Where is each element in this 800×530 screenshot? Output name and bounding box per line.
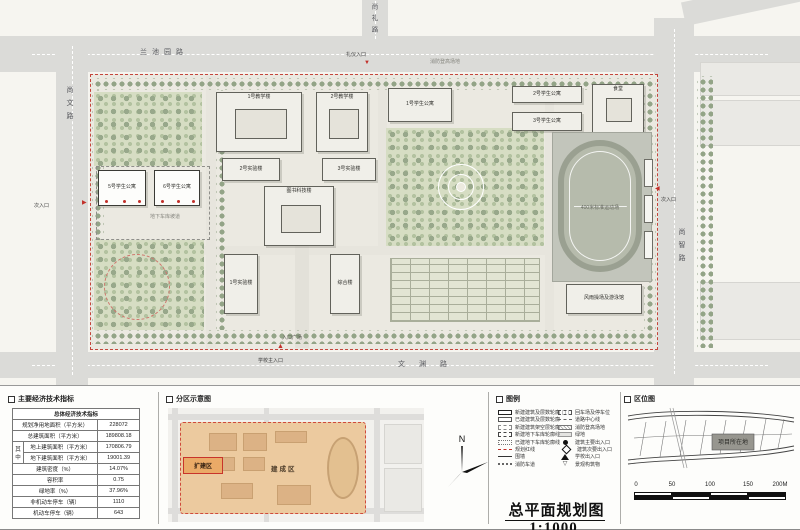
econ-row-label: 建筑密度（%） <box>13 464 98 475</box>
north-arrow: N <box>436 430 490 500</box>
central-green <box>386 128 544 246</box>
zoning-panel-header: 分区示意图 <box>166 394 211 404</box>
legend-item: 围墙 <box>498 454 556 459</box>
legend-swatch-landscape: ▽ <box>558 462 572 467</box>
adjacent-parcel <box>700 62 800 96</box>
legend-item: 回车场及停车位 <box>558 410 616 415</box>
econ-row-label: 规划净用地面积（平方米） <box>13 420 98 431</box>
building-lab-2: 2号实验楼 <box>222 158 280 181</box>
legend-swatch-existing-building <box>498 417 512 422</box>
checkbox-icon <box>8 396 15 403</box>
drawing-title: 总平面规划图 1:1000 <box>490 499 620 530</box>
checkbox-icon <box>624 396 631 403</box>
building-new-dorm-6: 6号学生公寓 <box>154 170 200 206</box>
econ-among-label: 其中 <box>13 442 24 464</box>
secondary-entrance-east-label: 次入口 <box>661 196 676 203</box>
building-teaching-1: 1号教学楼 <box>216 92 302 152</box>
built-zone-label: 建成区 <box>271 463 297 473</box>
legend-item: 道路中心线 <box>558 417 616 422</box>
legend-item: 新建地下车库轮廓线 <box>498 432 556 437</box>
legend-swatch-greenland <box>558 432 572 437</box>
stadium-label: 400米标准运动场 <box>564 204 636 211</box>
legend-item: 已建建筑及层数轮廓 <box>498 417 556 422</box>
building-lab-3: 3号实验楼 <box>322 158 376 181</box>
econ-row-value: 19001.39 <box>98 453 140 464</box>
zoning-campus-extent: 扩建区 建成区 <box>180 422 366 514</box>
garage-ramp-label: 地下车库坡道 <box>150 213 180 220</box>
legend-swatch-red-line <box>498 449 512 450</box>
plaza-ring <box>456 182 466 192</box>
legend-item: 新建建筑架空层轮廓 <box>498 425 556 430</box>
adjacent-parcel <box>700 100 800 146</box>
panel-divider <box>620 392 621 524</box>
info-strip: 主要经济技术指标 总体经济技术指标 规划净用地面积（平方米）228072 总建筑… <box>0 385 800 530</box>
legend-swatch-existing-garage-outline <box>498 440 512 445</box>
building-dorm-3: 3号学生公寓 <box>512 112 582 131</box>
main-entrance-icon: ▲ <box>277 343 284 350</box>
checkbox-icon <box>166 396 173 403</box>
north-label: N <box>459 434 466 444</box>
legend-item: 新建建筑及层数轮廓 <box>498 410 556 415</box>
secondary-entrance-east-icon: ◀ <box>655 186 660 192</box>
secondary-entrance-west-label: 次入口 <box>34 202 49 209</box>
grandstand <box>644 195 653 223</box>
econ-row-label: 机动车停车（辆） <box>13 508 98 519</box>
econ-row-label: 地下建筑面积（平方米） <box>23 453 97 464</box>
setback-arc <box>104 254 170 320</box>
legend-swatch-parking <box>558 410 572 415</box>
green-area-northwest <box>94 92 202 166</box>
road-label-wenyuan: 文渊路 <box>398 359 461 369</box>
garden-plots <box>390 258 540 322</box>
ceremony-entrance-label: 礼仪入口 <box>346 51 366 58</box>
legend-swatch-fire-site <box>558 425 572 430</box>
econ-row-value: 14.07% <box>98 464 140 475</box>
econ-row-value: 1110 <box>98 497 140 508</box>
legend-item: 消防车道 <box>498 462 556 467</box>
econ-row-value: 228072 <box>98 420 140 431</box>
main-entrance-label: 学校主入口 <box>258 357 283 364</box>
building-dorm-2: 2号学生公寓 <box>512 86 582 103</box>
stadium: 400米标准运动场 <box>552 132 652 282</box>
tree-row <box>92 330 656 344</box>
legend-column-right: 回车场及停车位 道路中心线 消防登高场地 绿地 建筑主要出入口 建筑次要出入口 … <box>558 410 616 469</box>
tree-row <box>697 76 713 348</box>
site-plan-sheet: 兰池园路 尚礼路 尚文路 尚智路 文渊路 <box>0 0 800 530</box>
zoning-panel-title: 分区示意图 <box>176 394 211 404</box>
econ-row-label: 总建筑面积（平方米） <box>13 431 98 442</box>
secondary-entrance-west-icon: ▶ <box>82 200 87 206</box>
scale-bar <box>634 496 786 500</box>
running-track: 400米标准运动场 <box>558 140 642 272</box>
road-label-shangli: 尚礼路 <box>368 3 378 38</box>
panel-divider <box>158 392 159 524</box>
legend-swatch-new-garage-outline <box>498 432 512 437</box>
legend-item: 学校出入口 <box>558 454 616 459</box>
legend-swatch-overhang-outline <box>498 425 512 430</box>
building-lab-1: 1号实验楼 <box>224 254 258 314</box>
road-label-lanchiyuan: 兰池园路 <box>140 47 188 57</box>
green-area-southwest <box>94 240 204 330</box>
legend-item: 消防登高场地 <box>558 425 616 430</box>
location-panel-title: 区位图 <box>634 394 655 404</box>
legend-swatch-new-building <box>498 410 512 415</box>
legend-item: 绿地 <box>558 432 616 437</box>
building-complex: 综合楼 <box>330 254 360 314</box>
legend-swatch-centerline <box>558 419 572 420</box>
econ-row-value: 643 <box>98 508 140 519</box>
building-canteen: 食堂 <box>592 84 644 134</box>
checkbox-icon <box>496 396 503 403</box>
econ-table-title: 总体经济技术指标 <box>13 409 140 420</box>
legend-swatch-wall <box>498 456 512 457</box>
scale-ticks: 0 50 100 150 200M <box>634 482 786 490</box>
fire-access-label: 消防登高场地 <box>430 58 460 65</box>
econ-row-label: 地上建筑面积（平方米） <box>23 442 97 453</box>
expansion-zone-box: 扩建区 <box>183 457 223 474</box>
econ-row-label: 绿地率（%） <box>13 486 98 497</box>
legend-swatch-school-gate <box>561 454 569 460</box>
location-map: 项目所在地 <box>626 406 796 470</box>
ceremony-entrance-icon: ▼ <box>364 60 370 66</box>
legend-panel-title: 图例 <box>506 394 520 404</box>
legend-item: 已建地下车库轮廓线 <box>498 440 556 445</box>
legend-item: 规划红线 <box>498 447 556 452</box>
building-dorm-1: 1号学生公寓 <box>388 88 452 122</box>
building-sports-hall: 风雨操场及游泳馆 <box>566 284 642 314</box>
adjacent-parcel <box>700 282 800 340</box>
building-teaching-2: 2号教学楼 <box>316 92 368 152</box>
road-label-shangwen: 尚文路 <box>64 86 74 125</box>
zoning-minimap: 扩建区 建成区 <box>168 408 424 522</box>
road-diagonal-northeast <box>681 0 800 26</box>
master-plan: 兰池园路 尚礼路 尚文路 尚智路 文渊路 <box>0 0 800 385</box>
project-site-label: 项目所在地 <box>718 438 748 446</box>
econ-panel-header: 主要经济技术指标 <box>8 394 74 404</box>
grandstand <box>644 231 653 259</box>
location-panel-header: 区位图 <box>624 394 655 404</box>
building-new-dorm-5: 5号学生公寓 <box>98 170 146 206</box>
econ-row-value: 170806.79 <box>98 442 140 453</box>
road-label-shangzhi: 尚智路 <box>676 228 686 267</box>
econ-row-value: 189808.18 <box>98 431 140 442</box>
entrance-plaza-label: 入口广场 <box>282 334 302 341</box>
zoning-stadium-hint <box>327 437 359 499</box>
econ-row-label: 容积率 <box>13 475 98 486</box>
legend-item: ▽景观构筑物 <box>558 462 616 467</box>
legend-panel-header: 图例 <box>496 394 520 404</box>
legend-column-left: 新建建筑及层数轮廓 已建建筑及层数轮廓 新建建筑架空层轮廓 新建地下车库轮廓线 … <box>498 410 556 469</box>
econ-row-value: 37.96% <box>98 486 140 497</box>
econ-table: 总体经济技术指标 规划净用地面积（平方米）228072 总建筑面积（平方米）18… <box>12 408 140 519</box>
legend-item: 建筑次要出入口 <box>558 447 616 452</box>
econ-panel-title: 主要经济技术指标 <box>18 394 74 404</box>
building-library: 图书科技楼 <box>264 186 334 246</box>
econ-row-value: 0.75 <box>98 475 140 486</box>
legend-swatch-fire-lane <box>498 463 512 466</box>
grandstand <box>644 159 653 187</box>
econ-row-label: 非机动车停车（辆） <box>13 497 98 508</box>
